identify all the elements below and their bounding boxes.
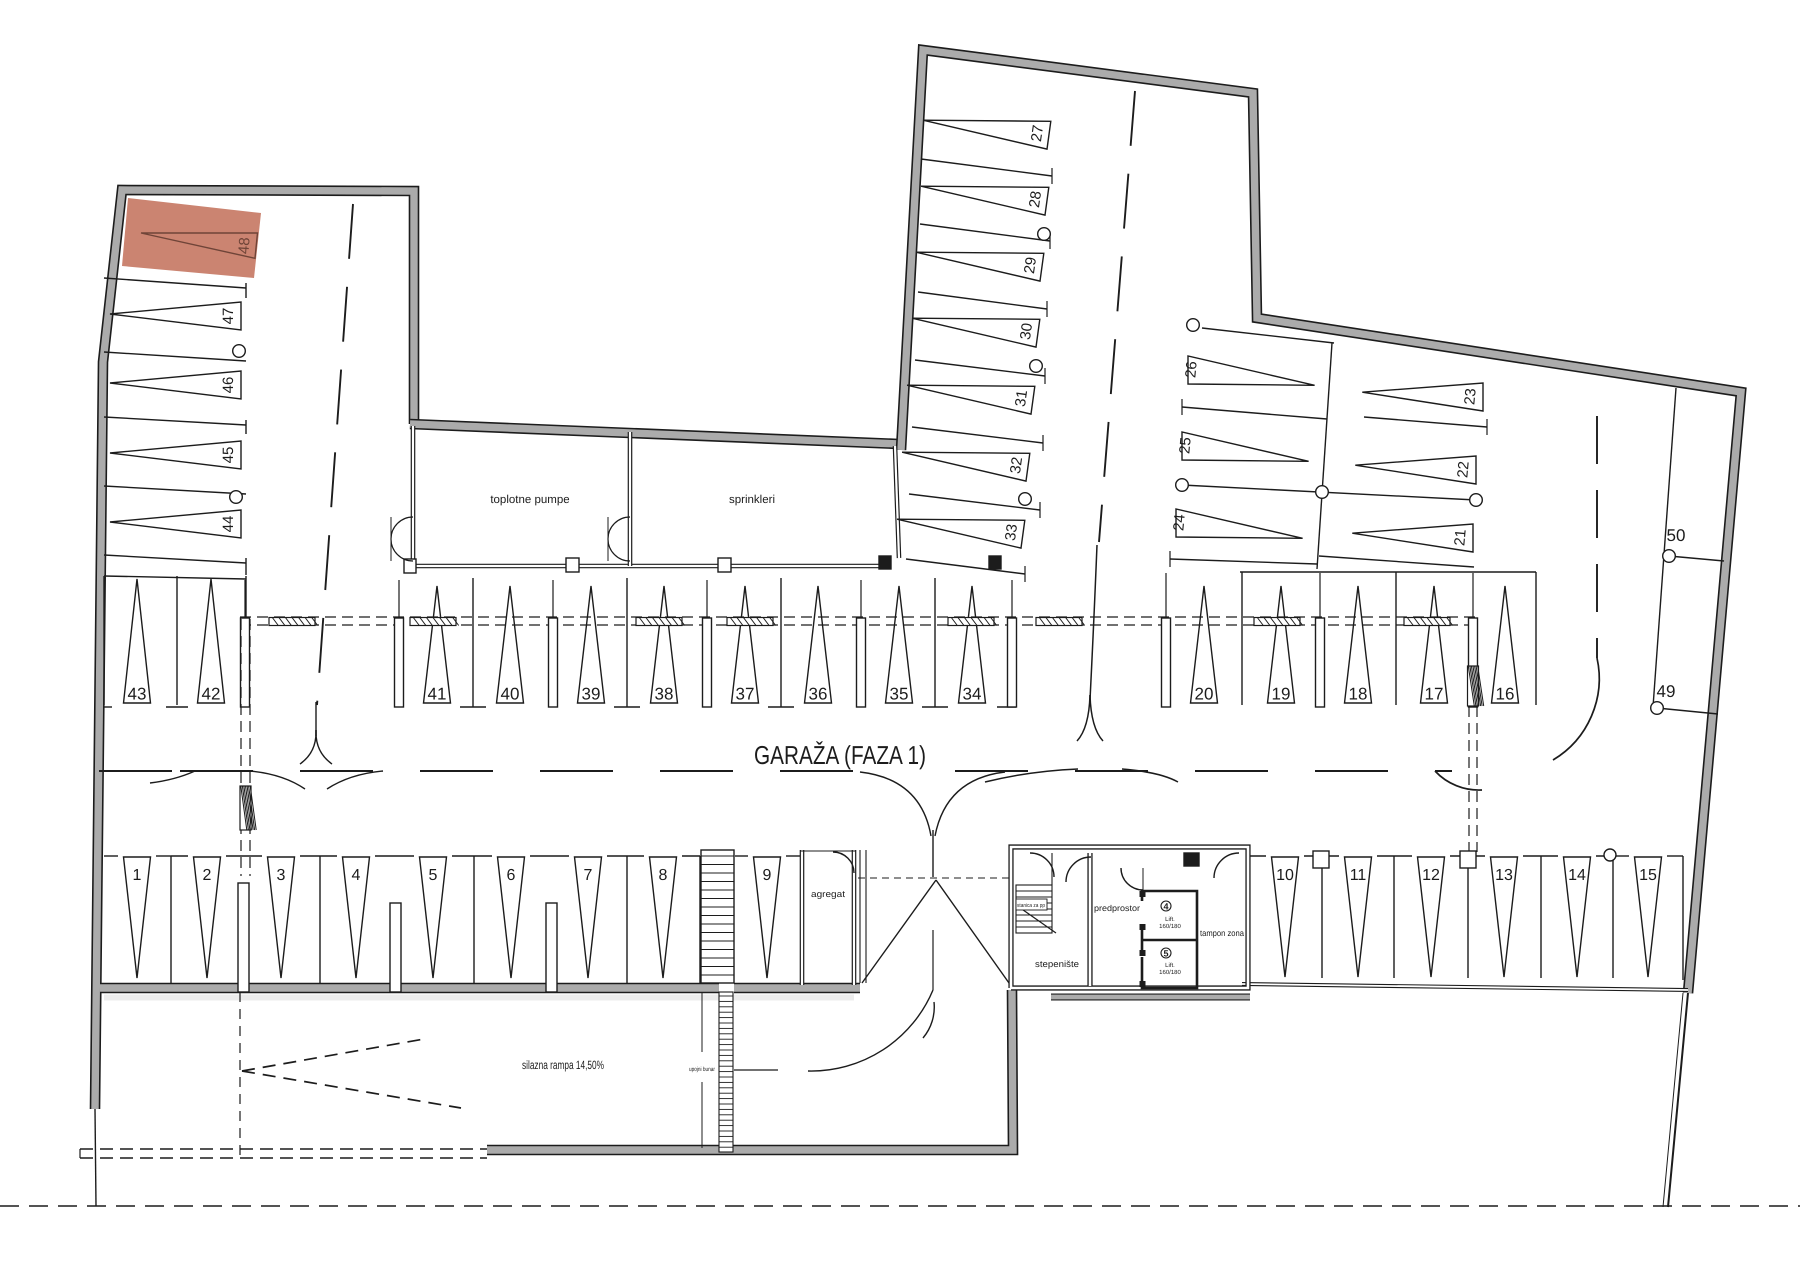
svg-text:predprostor: predprostor <box>1094 903 1140 913</box>
svg-text:21: 21 <box>1451 529 1469 547</box>
svg-text:agregat: agregat <box>811 889 846 899</box>
svg-text:48: 48 <box>235 237 253 255</box>
svg-text:Lift.: Lift. <box>1165 916 1175 923</box>
svg-text:silazna rampa 14,50%: silazna rampa 14,50% <box>522 1058 604 1072</box>
svg-text:4: 4 <box>352 867 361 884</box>
svg-text:6: 6 <box>507 867 516 884</box>
svg-text:11: 11 <box>1350 867 1367 884</box>
svg-text:15: 15 <box>1639 867 1657 884</box>
svg-text:33: 33 <box>1002 523 1021 542</box>
svg-text:GARAŽA (FAZA 1): GARAŽA (FAZA 1) <box>754 740 926 770</box>
svg-text:sprinkleri: sprinkleri <box>729 494 775 506</box>
svg-text:47: 47 <box>220 308 237 325</box>
svg-text:22: 22 <box>1454 461 1472 479</box>
svg-text:37: 37 <box>736 685 755 704</box>
svg-text:30: 30 <box>1017 322 1036 341</box>
svg-text:31: 31 <box>1012 389 1031 408</box>
svg-text:23: 23 <box>1461 388 1479 406</box>
svg-text:16: 16 <box>1496 685 1515 704</box>
svg-text:12: 12 <box>1422 867 1440 884</box>
svg-text:tampon zona: tampon zona <box>1200 928 1244 938</box>
svg-text:32: 32 <box>1007 456 1026 475</box>
svg-text:8: 8 <box>659 867 668 884</box>
svg-text:5: 5 <box>1163 949 1168 959</box>
svg-text:4: 4 <box>1163 902 1168 912</box>
svg-text:38: 38 <box>655 685 674 704</box>
svg-text:10: 10 <box>1276 867 1294 884</box>
svg-text:17: 17 <box>1425 685 1444 704</box>
svg-text:24: 24 <box>1170 514 1188 532</box>
svg-text:160/180: 160/180 <box>1159 969 1181 976</box>
svg-text:7: 7 <box>584 867 593 884</box>
svg-text:45: 45 <box>220 447 237 464</box>
svg-text:44: 44 <box>220 516 237 533</box>
svg-text:160/180: 160/180 <box>1159 923 1181 930</box>
svg-text:stepenište: stepenište <box>1035 959 1079 969</box>
svg-text:19: 19 <box>1272 685 1291 704</box>
svg-text:50: 50 <box>1667 526 1686 545</box>
svg-text:5: 5 <box>429 867 438 884</box>
svg-text:3: 3 <box>277 867 286 884</box>
svg-text:stanica za pp: stanica za pp <box>1017 903 1045 909</box>
svg-text:26: 26 <box>1182 361 1200 379</box>
svg-text:28: 28 <box>1026 190 1045 209</box>
svg-text:35: 35 <box>890 685 909 704</box>
svg-text:1: 1 <box>133 867 142 884</box>
svg-text:14: 14 <box>1568 867 1586 884</box>
svg-text:27: 27 <box>1028 124 1047 143</box>
svg-text:39: 39 <box>582 685 601 704</box>
svg-text:40: 40 <box>501 685 520 704</box>
svg-text:41: 41 <box>428 685 447 704</box>
svg-text:2: 2 <box>203 867 212 884</box>
svg-text:36: 36 <box>809 685 828 704</box>
svg-text:42: 42 <box>202 685 221 704</box>
svg-text:Lift.: Lift. <box>1165 962 1175 969</box>
svg-text:toplotne pumpe: toplotne pumpe <box>490 494 569 506</box>
svg-text:29: 29 <box>1021 256 1040 275</box>
svg-text:34: 34 <box>963 685 982 704</box>
svg-text:49: 49 <box>1657 682 1676 701</box>
svg-text:25: 25 <box>1176 437 1194 455</box>
svg-text:43: 43 <box>128 685 147 704</box>
svg-text:18: 18 <box>1349 685 1368 704</box>
svg-text:upojni bunar: upojni bunar <box>689 1066 715 1073</box>
svg-text:20: 20 <box>1195 685 1214 704</box>
svg-text:46: 46 <box>220 377 237 394</box>
svg-text:9: 9 <box>763 867 772 884</box>
svg-text:13: 13 <box>1495 867 1513 884</box>
